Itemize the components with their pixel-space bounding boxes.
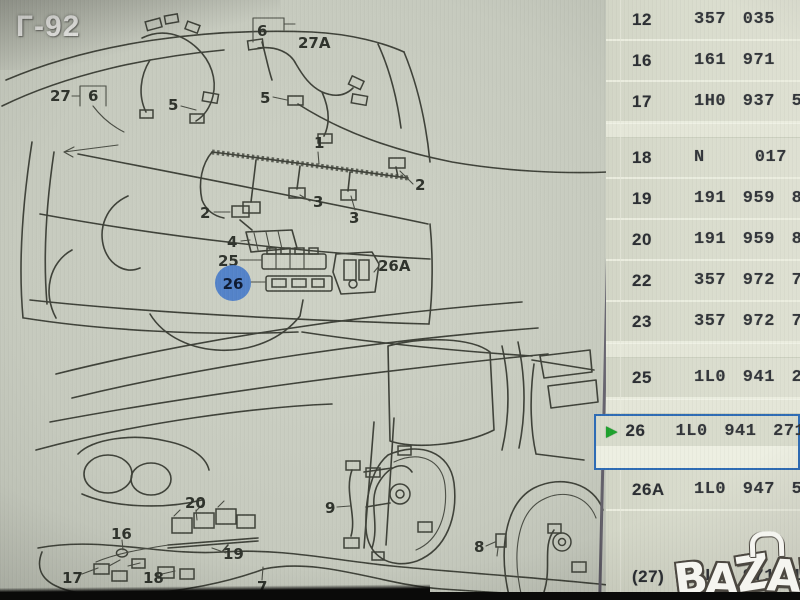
row-part-number: 1L0 947 555 bbox=[694, 480, 800, 499]
table-row[interactable]: 16161 971 bbox=[606, 41, 800, 82]
harness-bottom bbox=[38, 446, 610, 600]
callout-27a[interactable]: 27A bbox=[298, 34, 331, 52]
row-part-number: 161 971 bbox=[694, 51, 775, 70]
callout-6-left[interactable]: 6 bbox=[88, 87, 98, 105]
table-group-spacer bbox=[606, 343, 800, 358]
bottom-bezel bbox=[0, 592, 800, 600]
row-part-number: 357 972 75 bbox=[694, 271, 800, 290]
table-row[interactable]: 19191 959 8 bbox=[606, 179, 800, 220]
callout-9[interactable]: 9 bbox=[325, 499, 335, 517]
row-position: 19 bbox=[632, 189, 694, 209]
callout-16[interactable]: 16 bbox=[111, 525, 132, 543]
row-position: 18 bbox=[632, 148, 694, 168]
table-row[interactable]: 12357 035 bbox=[606, 0, 800, 41]
callout-19[interactable]: 19 bbox=[223, 545, 244, 563]
row-position: 22 bbox=[632, 271, 694, 291]
callout-4[interactable]: 4 bbox=[227, 233, 237, 251]
callout-6-right[interactable]: 6 bbox=[257, 22, 267, 40]
car-dashboard-outline bbox=[36, 302, 598, 548]
row-position: 26A bbox=[632, 480, 694, 500]
row-part-number: 1L0 941 271 bbox=[676, 422, 800, 441]
table-row[interactable]: 23357 972 753 bbox=[606, 302, 800, 343]
row-position: 12 bbox=[632, 10, 694, 30]
callout-27[interactable]: 27 bbox=[50, 87, 71, 105]
row-position: 16 bbox=[632, 51, 694, 71]
parts-diagram: 27 6 5 6 27A 5 1 2 2 3 3 4 25 26 26A 20 … bbox=[0, 0, 612, 600]
callout-5-left[interactable]: 5 bbox=[168, 96, 178, 114]
row-position: 17 bbox=[632, 92, 694, 112]
row-part-number: 357 035 bbox=[694, 10, 775, 29]
table-row[interactable]: 20191 959 86 bbox=[606, 220, 800, 261]
callout-26[interactable]: 26 bbox=[223, 275, 244, 293]
row-part-number: 357 972 753 bbox=[694, 312, 800, 331]
table-row[interactable]: 171H0 937 5 bbox=[606, 82, 800, 123]
bag-handle-icon bbox=[749, 531, 784, 557]
row-part-number: 1L0 941 269 bbox=[694, 368, 800, 387]
table-row[interactable]: 22357 972 75 bbox=[606, 261, 800, 302]
row-position: 26 bbox=[626, 421, 676, 441]
row-part-number: 191 959 86 bbox=[694, 230, 800, 249]
table-group-spacer bbox=[606, 123, 800, 138]
callout-5-right[interactable]: 5 bbox=[260, 89, 270, 107]
row-position: 20 bbox=[632, 230, 694, 250]
table-row[interactable]: 18N 017 1 bbox=[606, 138, 800, 179]
callout-2-left[interactable]: 2 bbox=[200, 204, 210, 222]
table-rows: 12357 03516161 971171H0 937 518N 017 119… bbox=[606, 0, 800, 598]
callout-20[interactable]: 20 bbox=[185, 494, 206, 512]
page-code: Г-92 bbox=[16, 10, 80, 44]
row-position: 23 bbox=[632, 312, 694, 332]
table-row[interactable]: 251L0 941 269 bbox=[606, 358, 800, 399]
callout-labels: 27 6 5 6 27A 5 1 2 2 3 3 4 25 26 26A 20 … bbox=[50, 22, 484, 596]
callout-8[interactable]: 8 bbox=[474, 538, 484, 556]
callout-17[interactable]: 17 bbox=[62, 569, 83, 587]
table-row[interactable]: 26A1L0 947 555 bbox=[606, 470, 800, 511]
harness-top-right bbox=[248, 39, 608, 173]
parts-catalog-screen: Г-92 bbox=[0, 0, 800, 600]
parts-table: 12357 03516161 971171H0 937 518N 017 119… bbox=[606, 0, 800, 600]
callout-18[interactable]: 18 bbox=[143, 569, 164, 587]
callout-3-lower[interactable]: 3 bbox=[349, 209, 359, 227]
callout-26a[interactable]: 26A bbox=[378, 257, 411, 275]
row-part-number: N 017 1 bbox=[694, 148, 800, 167]
table-row-selected[interactable]: ▶261L0 941 271 bbox=[594, 414, 800, 470]
callout-1[interactable]: 1 bbox=[314, 134, 324, 152]
table-group-spacer bbox=[606, 399, 800, 414]
callout-2-right[interactable]: 2 bbox=[415, 176, 425, 194]
row-part-number: 1H0 937 5 bbox=[694, 92, 800, 111]
selected-row-marker-icon: ▶ bbox=[606, 424, 618, 439]
callout-3-upper[interactable]: 3 bbox=[313, 193, 323, 211]
row-position: 25 bbox=[632, 368, 694, 388]
row-part-number: 191 959 8 bbox=[694, 189, 800, 208]
diagram-panel: Г-92 bbox=[0, 0, 612, 600]
